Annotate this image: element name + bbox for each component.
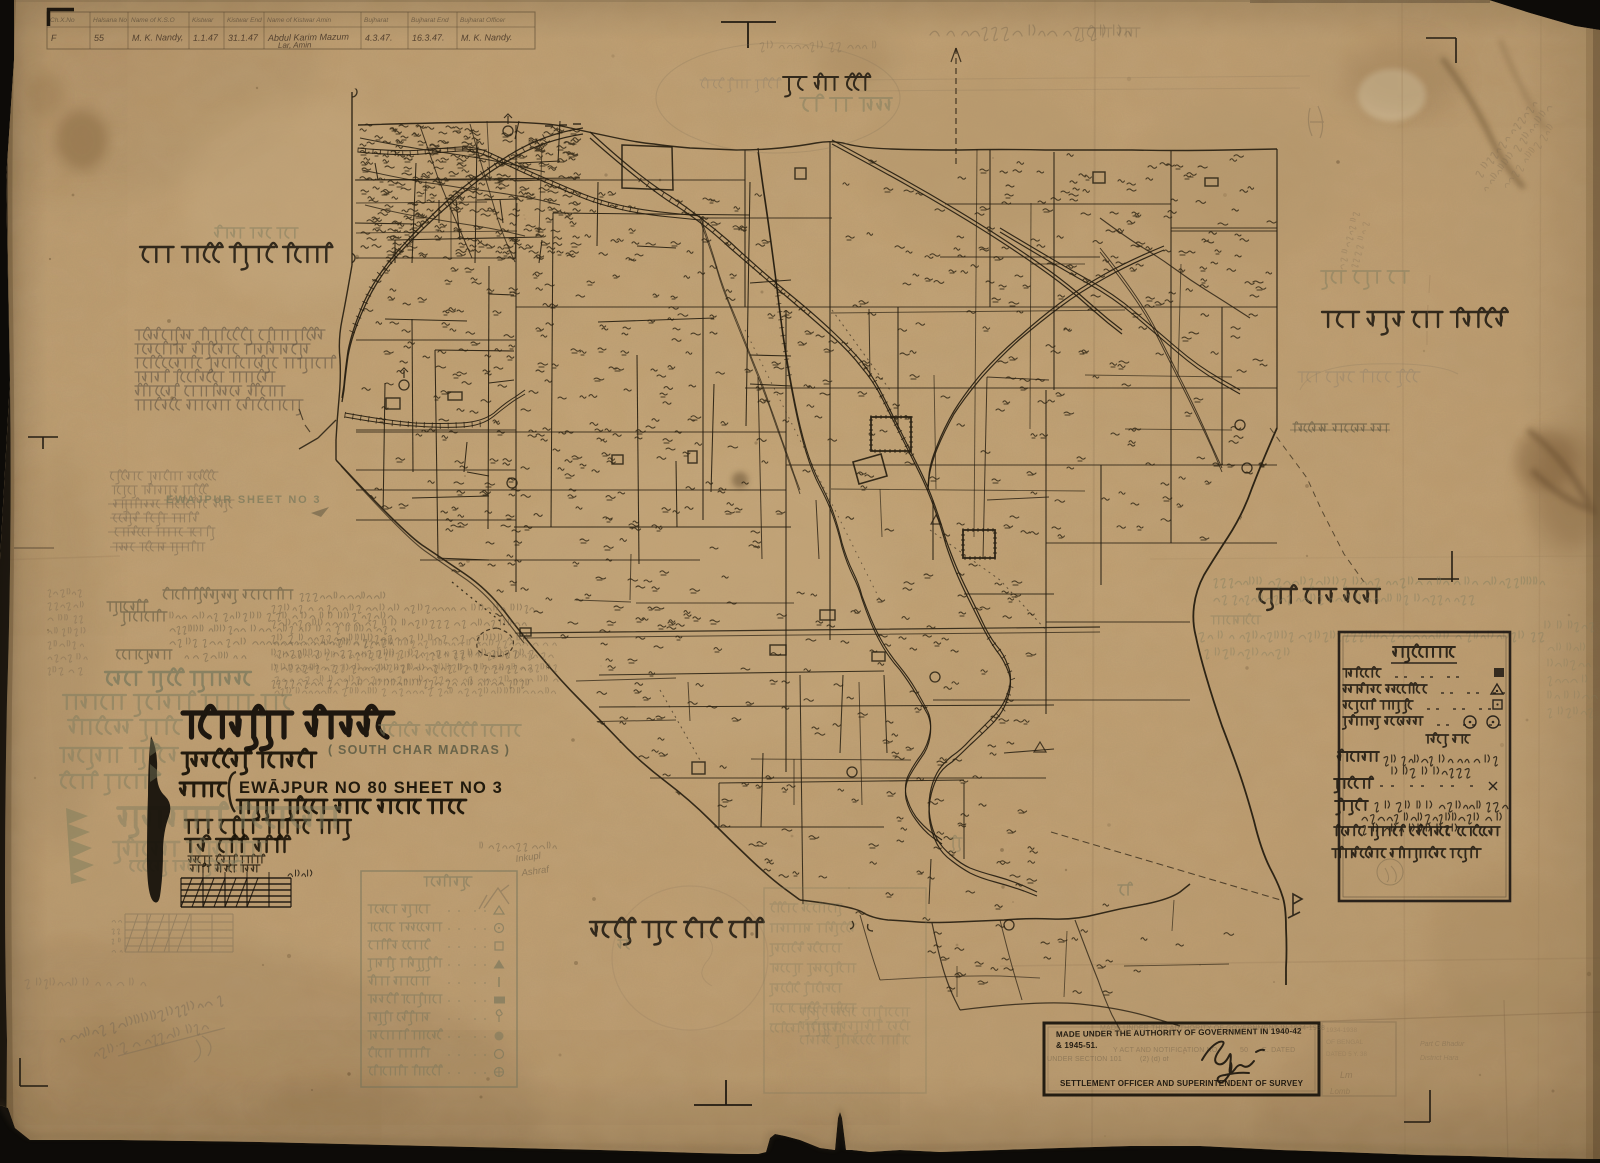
svg-text:1934-1938: 1934-1938 [1326,1027,1357,1034]
svg-text:1.1.47: 1.1.47 [193,33,219,43]
svg-text:DATED 5 Y. 38: DATED 5 Y. 38 [1326,1051,1367,1058]
svg-text:Bujharat: Bujharat [364,17,389,24]
svg-text:Y ACT AND NOTIFICATION NO: Y ACT AND NOTIFICATION NO [1113,1047,1218,1054]
svg-text:OF BENGAL: OF BENGAL [1326,1039,1364,1046]
svg-text:MADE UNDER THIS AUTHORITY OF G: MADE UNDER THIS AUTHORITY OF GOVERNMENT … [1100,1025,1325,1032]
svg-text:Name of Kistwar Amin: Name of Kistwar Amin [267,17,331,24]
svg-text:M. K. Nandy,: M. K. Nandy, [132,32,184,43]
svg-text:EWĀJPUR NO 80 SHEET NO 3: EWĀJPUR NO 80 SHEET NO 3 [239,778,503,797]
svg-text:4.3.47.: 4.3.47. [365,33,393,43]
svg-text:Ch.X.No: Ch.X.No [50,17,75,24]
svg-text:31.1.47: 31.1.47 [228,32,259,43]
svg-text:F: F [51,33,57,43]
svg-text:E. DATED: E. DATED [1262,1047,1295,1054]
svg-text:Part C Bhadur: Part C Bhadur [1420,1041,1465,1048]
svg-text:55: 55 [94,33,105,43]
svg-text:Halsana No: Halsana No [93,17,127,24]
svg-text:Kistwar End: Kistwar End [227,17,262,24]
svg-text:SETTLEMENT OFFICER AND SUPERIN: SETTLEMENT OFFICER AND SUPERINTENDENT OF… [1060,1079,1304,1088]
svg-text:Bujharat Officer: Bujharat Officer [460,17,506,24]
svg-text:Bujharat End: Bujharat End [411,17,449,24]
svg-text:Lar, Amin: Lar, Amin [278,40,312,50]
svg-text:(2) (d) of: (2) (d) of [1140,1056,1169,1063]
svg-text:Kistwar: Kistwar [192,17,214,24]
svg-text:M. K. Nandy.: M. K. Nandy. [461,32,513,43]
svg-text:Lomb: Lomb [1330,1087,1351,1096]
svg-text:District Hara: District Hara [1420,1055,1459,1062]
svg-text:Name of K.S.O: Name of K.S.O [131,17,175,24]
svg-text:50: 50 [1240,1047,1248,1054]
svg-text:( SOUTH CHAR MADRAS ): ( SOUTH CHAR MADRAS ) [328,743,510,757]
svg-text:UNDER SECTION 101: UNDER SECTION 101 [1047,1056,1122,1063]
svg-text:16.3.47.: 16.3.47. [412,32,445,43]
svg-text:Lm: Lm [1340,1070,1353,1080]
svg-text:& 1945-51.: & 1945-51. [1056,1041,1098,1050]
svg-text:EWAJPUR SHEET NO 3: EWAJPUR SHEET NO 3 [166,494,321,506]
